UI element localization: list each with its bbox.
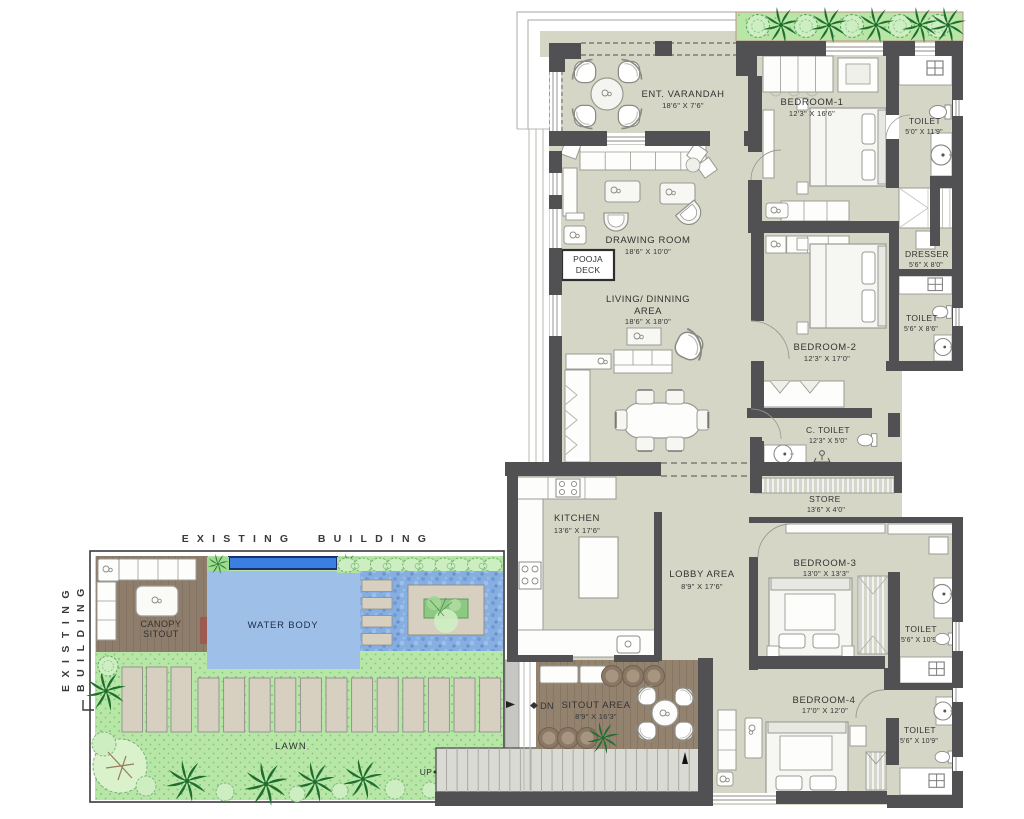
svg-text:STORE: STORE <box>809 494 841 504</box>
svg-text:AREA: AREA <box>634 306 662 317</box>
svg-text:BEDROOM-2: BEDROOM-2 <box>794 342 857 353</box>
svg-text:12'3" X 17'0": 12'3" X 17'0" <box>804 354 850 363</box>
svg-text:13'6" X 4'0": 13'6" X 4'0" <box>807 507 845 514</box>
svg-text:18'6" X 18'0": 18'6" X 18'0" <box>625 317 671 326</box>
svg-text:5'6" X 8'6": 5'6" X 8'6" <box>904 326 938 333</box>
svg-text:DECK: DECK <box>576 265 601 275</box>
svg-text:LAWN: LAWN <box>275 741 307 752</box>
svg-text:SITOUT: SITOUT <box>143 629 179 639</box>
svg-text:EXISTING: EXISTING <box>182 533 297 545</box>
svg-text:DN: DN <box>540 701 554 711</box>
svg-text:DRAWING ROOM: DRAWING ROOM <box>606 235 691 246</box>
svg-text:UP: UP <box>420 767 432 777</box>
svg-text:WATER BODY: WATER BODY <box>248 620 319 631</box>
svg-text:18'6" X 10'0": 18'6" X 10'0" <box>625 247 671 256</box>
svg-text:LOBBY AREA: LOBBY AREA <box>669 569 735 580</box>
svg-text:KITCHEN: KITCHEN <box>554 513 600 524</box>
svg-text:8'9" X 16'3": 8'9" X 16'3" <box>575 712 617 721</box>
svg-text:BEDROOM-1: BEDROOM-1 <box>781 97 844 108</box>
svg-text:DRESSER: DRESSER <box>905 249 949 259</box>
svg-text:EXISTING: EXISTING <box>60 583 72 692</box>
svg-text:CANOPY: CANOPY <box>140 619 181 629</box>
svg-text:POOJA: POOJA <box>573 254 603 264</box>
svg-text:ENT. VARANDAH: ENT. VARANDAH <box>641 89 724 100</box>
svg-text:C. TOILET: C. TOILET <box>806 425 850 435</box>
svg-text:TOILET: TOILET <box>909 116 941 126</box>
svg-text:TOILET: TOILET <box>904 725 936 735</box>
svg-text:5'6" X 8'0": 5'6" X 8'0" <box>909 262 943 269</box>
svg-text:TOILET: TOILET <box>905 624 937 634</box>
svg-text:13'6" X 17'6": 13'6" X 17'6" <box>554 526 600 535</box>
svg-text:12'3" X 16'6": 12'3" X 16'6" <box>789 109 835 118</box>
svg-text:13'0" X 13'3": 13'0" X 13'3" <box>803 569 849 578</box>
svg-text:BUILDING: BUILDING <box>75 581 87 692</box>
svg-text:TOILET: TOILET <box>906 313 938 323</box>
svg-text:SITOUT AREA: SITOUT AREA <box>561 700 630 711</box>
svg-text:5'0" X 11'9": 5'0" X 11'9" <box>905 129 943 136</box>
svg-text:5'6" X 10'9": 5'6" X 10'9" <box>900 738 938 745</box>
svg-text:5'6" X 10'9": 5'6" X 10'9" <box>901 637 939 644</box>
svg-text:17'0" X 12'0": 17'0" X 12'0" <box>802 706 848 715</box>
svg-text:12'3" X 5'0": 12'3" X 5'0" <box>809 438 847 445</box>
svg-text:BEDROOM-3: BEDROOM-3 <box>794 558 857 569</box>
svg-text:BEDROOM-4: BEDROOM-4 <box>793 695 856 706</box>
svg-text:LIVING/ DINNING: LIVING/ DINNING <box>606 294 690 305</box>
svg-text:BUILDING: BUILDING <box>318 533 434 545</box>
svg-text:18'6" X 7'6": 18'6" X 7'6" <box>662 101 704 110</box>
svg-text:8'9" X 17'6": 8'9" X 17'6" <box>681 582 723 591</box>
